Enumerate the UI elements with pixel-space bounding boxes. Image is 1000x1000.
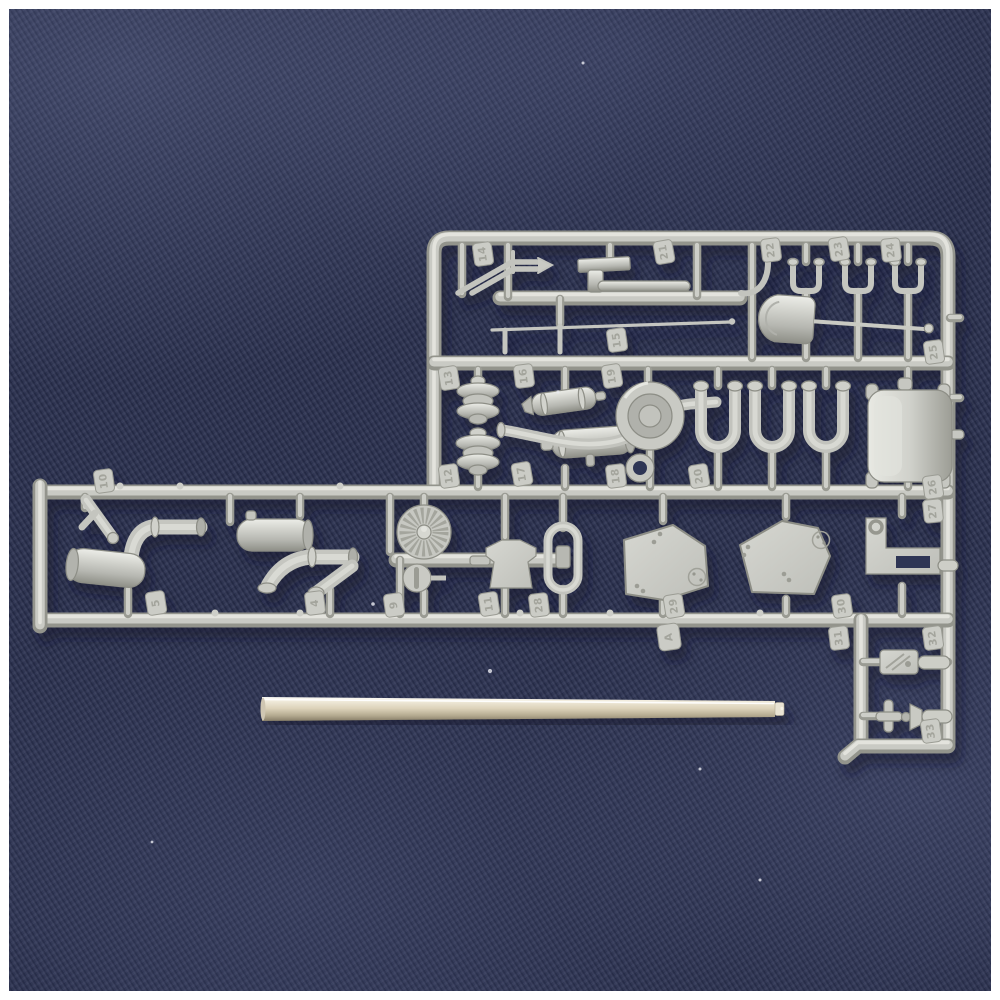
- part-number-tag: 30: [835, 597, 849, 614]
- part-number-tag: 16: [517, 368, 531, 385]
- part-u-pipe: [694, 381, 743, 447]
- part-number-tag: 29: [667, 597, 681, 614]
- part-number-tag: 20: [692, 467, 706, 484]
- photo-frame: 14 21 22 23 24 15 25 13 16 19 12 17 18 2…: [0, 0, 1000, 1000]
- part-insulator-stack: [457, 376, 499, 424]
- part-number-tag: 31: [832, 630, 846, 647]
- part-u-pipe: [748, 381, 797, 447]
- part-number-tag: 18: [609, 468, 623, 485]
- part-number-tag: 25: [927, 343, 941, 360]
- part-number-tag: 9: [388, 600, 401, 609]
- metal-rod: [261, 697, 785, 721]
- part-angled-stub-pipe: [82, 500, 119, 544]
- part-curved-shield: [866, 378, 964, 488]
- part-number-tag: 12: [442, 467, 456, 484]
- part-u-pipe: [802, 381, 851, 447]
- part-number-tag: 10: [97, 472, 111, 489]
- part-number-tag: 32: [926, 629, 940, 646]
- sprue-runners: [40, 234, 960, 757]
- part-drum-ring: [616, 382, 684, 450]
- part-number-tag: 28: [532, 597, 546, 614]
- part-number-tag: 33: [924, 722, 938, 739]
- part-finned-disc: [397, 505, 451, 559]
- part-fender-plate: [624, 525, 708, 600]
- part-insulator-stack: [456, 428, 500, 475]
- part-small-fitting: [880, 650, 950, 674]
- part-number-tag: 24: [884, 242, 898, 259]
- part-number-tag: 4: [309, 598, 322, 607]
- part-number-tag: 11: [482, 595, 496, 612]
- part-number-tag: 23: [832, 240, 846, 257]
- part-number-tag: 15: [610, 331, 624, 348]
- part-number-tag: 14: [476, 245, 490, 262]
- part-number-tag: 13: [442, 369, 456, 386]
- part-number-tag: 27: [926, 503, 940, 520]
- part-number-tag: 26: [926, 478, 940, 495]
- part-fender-plate: [740, 521, 830, 594]
- part-column-bracket: [470, 540, 536, 588]
- sprue: 14 21 22 23 24 15 25 13 16 19 12 17 18 2…: [40, 234, 964, 757]
- part-valve-wheel: [403, 564, 446, 592]
- part-number-tag: 22: [764, 242, 778, 259]
- part-number-tag: 19: [605, 367, 619, 384]
- part-small-ring: [626, 454, 654, 482]
- scene: 14 21 22 23 24 15 25 13 16 19 12 17 18 2…: [0, 0, 1000, 1000]
- part-track-link: [548, 526, 578, 590]
